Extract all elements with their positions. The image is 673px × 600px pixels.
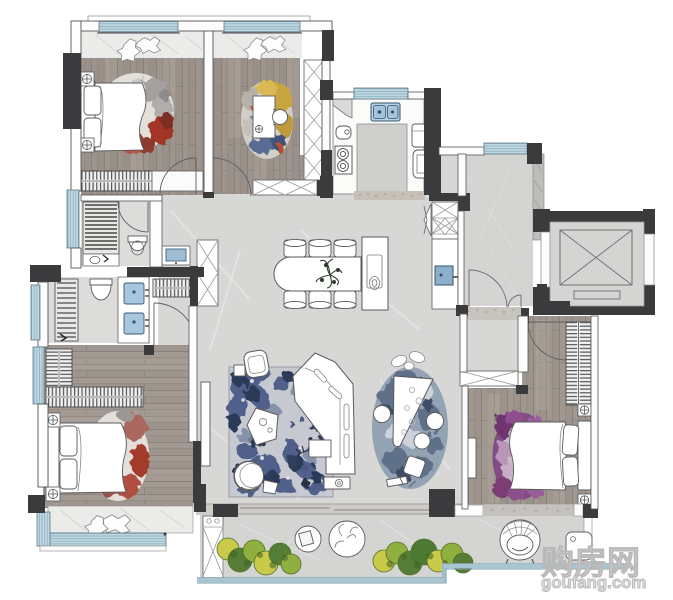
svg-text:goufang.com: goufang.com (541, 573, 646, 592)
